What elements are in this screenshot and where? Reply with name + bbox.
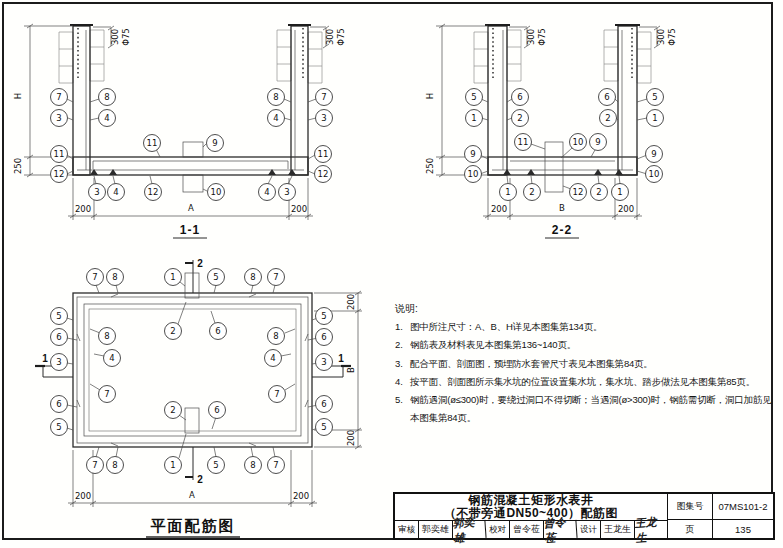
section-1-marker-right: 1 bbox=[338, 353, 344, 364]
sump-cut-bottom bbox=[185, 408, 199, 433]
title-block-left: 钢筋混凝土矩形水表井 （不带旁通DN50~400）配筋图 审核 郭奕雄 郭奕雄 … bbox=[395, 494, 668, 538]
title-block-labels: 图集号 页 bbox=[668, 494, 713, 538]
page-number-value: 135 bbox=[713, 520, 773, 538]
rebar-callout: 1 bbox=[647, 110, 664, 127]
note-number: 2. bbox=[395, 336, 410, 354]
callout-number: 8 bbox=[112, 460, 117, 470]
callout-number: 11 bbox=[54, 149, 65, 159]
rebar-callout: 5 bbox=[647, 89, 664, 106]
checker-signature: 曾令莅 bbox=[543, 520, 577, 540]
callout-number: 5 bbox=[213, 460, 218, 470]
rebar-callout: 11 bbox=[315, 146, 332, 163]
callout-leaders bbox=[67, 282, 318, 458]
callout-number: 2 bbox=[596, 187, 601, 197]
rebar-callout: 8 bbox=[245, 269, 262, 286]
note-number: 4. bbox=[395, 373, 410, 391]
title-block: 钢筋混凝土矩形水表井 （不带旁通DN50~400）配筋图 审核 郭奕雄 郭奕雄 … bbox=[393, 492, 775, 540]
dim-A-bottom: A bbox=[189, 490, 195, 500]
callout-number: 11 bbox=[518, 137, 529, 147]
note-text: 钢筋遇洞(ø≤300)时，要绕过洞口不得切断；当遇洞(ø>300)时，钢筋需切断… bbox=[410, 391, 775, 427]
callout-number: 2 bbox=[170, 326, 175, 336]
callout-number: 1 bbox=[652, 113, 657, 123]
checker-name: 曾令莅 bbox=[510, 521, 544, 539]
dim-200-right-bottom: 200 bbox=[346, 430, 356, 446]
atlas-drawing-page: 300 Φ75 300 Φ75 H 250 200 A 200 7 8 3 4 … bbox=[0, 0, 783, 548]
note-number: 1. bbox=[395, 318, 410, 336]
note-text: 钢筋表及材料表见本图集第136~140页。 bbox=[410, 336, 775, 354]
dim-H: H bbox=[13, 93, 23, 99]
base-slab bbox=[488, 157, 637, 175]
rebar-callout: 9 bbox=[207, 135, 224, 152]
callout-number: 1 bbox=[505, 187, 510, 197]
rebar-callout: 7 bbox=[268, 269, 285, 286]
note-item-1: 1.图中所注尺寸：A、B、H详见本图集第134页。 bbox=[395, 318, 775, 336]
designer-name: 王龙生 bbox=[601, 521, 635, 539]
dim-A: A bbox=[188, 203, 194, 213]
note-item-4: 4.按平面、剖面图所示集水坑的位置设置集水坑，集水坑、踏步做法见本图集第85页。 bbox=[395, 373, 775, 391]
callout-number: 7 bbox=[321, 92, 326, 102]
section-2-2-caption: 2-2 bbox=[552, 223, 572, 237]
callout-number: 1 bbox=[170, 460, 175, 470]
rebar-callout: 7 bbox=[268, 457, 285, 474]
rebar-callout: 3 bbox=[89, 184, 106, 201]
rebar-callout: 10 bbox=[570, 134, 587, 151]
stirrup-dots bbox=[493, 28, 632, 80]
callout-number: 2 bbox=[170, 405, 175, 415]
rebar-callout: 6 bbox=[209, 402, 226, 419]
callout-number: 2 bbox=[529, 187, 534, 197]
sump-rect bbox=[545, 142, 563, 192]
dim-200-bottom-left: 200 bbox=[75, 491, 91, 501]
callout-number: 6 bbox=[214, 405, 219, 415]
rebar-callout: 1 bbox=[500, 184, 517, 201]
reviewer-signature: 郭奕雄 bbox=[452, 520, 486, 540]
callout-number: 5 bbox=[56, 422, 61, 432]
callout-number: 10 bbox=[468, 169, 479, 179]
callout-number: 7 bbox=[92, 460, 97, 470]
ann-300-left: 300 bbox=[526, 29, 536, 45]
dim-250: 250 bbox=[13, 158, 23, 174]
well-rebar-rect1 bbox=[84, 304, 301, 436]
dim-H: H bbox=[425, 93, 435, 99]
callout-number: 2 bbox=[517, 113, 522, 123]
rebar-callout: 6 bbox=[316, 396, 333, 413]
rebar-callout: 12 bbox=[315, 166, 332, 183]
rebar-callout: 4 bbox=[268, 110, 285, 127]
callout-number: 9 bbox=[595, 137, 600, 147]
callout-number: 6 bbox=[215, 326, 220, 336]
ann-d75-left: Φ75 bbox=[121, 28, 131, 46]
callout-number: 4 bbox=[264, 187, 269, 197]
callout-number: 5 bbox=[56, 311, 61, 321]
rebar-callout: 7 bbox=[316, 89, 333, 106]
rebar-callout: 1 bbox=[165, 457, 182, 474]
rebar-callout: 6 bbox=[316, 329, 333, 346]
rebar-callout: 3 bbox=[279, 184, 296, 201]
callout-number: 3 bbox=[56, 113, 61, 123]
rebar-callout: 3 bbox=[51, 354, 68, 371]
drawing-title-line1: 钢筋混凝土矩形水表井 bbox=[469, 494, 594, 507]
rebar-callout: 5 bbox=[316, 308, 333, 325]
masonry-hatch bbox=[474, 30, 651, 83]
dim-200-right: 200 bbox=[618, 204, 634, 214]
masonry-hatch bbox=[59, 30, 322, 83]
callout-number: 8 bbox=[273, 92, 278, 102]
rebar-callout: 10 bbox=[465, 166, 482, 183]
callout-number: 6 bbox=[56, 332, 61, 342]
callout-number: 5 bbox=[652, 92, 657, 102]
rebar-callout: 4 bbox=[259, 184, 276, 201]
callout-number: 9 bbox=[651, 149, 656, 159]
rebar-callout: 4 bbox=[104, 350, 121, 367]
well-wall-line2 bbox=[77, 297, 308, 443]
rebar-callout: 5 bbox=[208, 457, 225, 474]
rebar-callout: 1 bbox=[612, 184, 629, 201]
rebar-callout: 8 bbox=[99, 89, 116, 106]
rebar-callout: 7 bbox=[269, 386, 286, 403]
approval-row: 审核 郭奕雄 郭奕雄 校对 曾令莅 曾令莅 设计 王龙生 王龙生 bbox=[395, 521, 667, 539]
callout-number: 6 bbox=[56, 399, 61, 409]
rebar-callout: 8 bbox=[99, 328, 116, 345]
callout-number: 12 bbox=[573, 187, 584, 197]
rebar-callout: 7 bbox=[51, 89, 68, 106]
rebar-callout: 10 bbox=[208, 184, 225, 201]
callout-number: 1 bbox=[471, 113, 476, 123]
reviewer-name: 郭奕雄 bbox=[419, 521, 453, 539]
section-2-marker-top: 2 bbox=[197, 258, 203, 269]
rebar-callout: 3 bbox=[316, 354, 333, 371]
rebar-callout: 2 bbox=[524, 184, 541, 201]
callout-number: 1 bbox=[617, 187, 622, 197]
rebar-callout: 1 bbox=[165, 269, 182, 286]
section-2-cut-bars bbox=[185, 263, 193, 477]
drawing-title: 钢筋混凝土矩形水表井 （不带旁通DN50~400）配筋图 bbox=[395, 494, 667, 521]
notes-panel: 说明: 1.图中所注尺寸：A、B、H详见本图集第134页。 2.钢筋表及材料表见… bbox=[395, 299, 775, 428]
callout-number: 5 bbox=[213, 272, 218, 282]
rebar-callout: 8 bbox=[107, 457, 124, 474]
ann-300-left: 300 bbox=[110, 29, 120, 45]
rebar-callout: 11 bbox=[51, 146, 68, 163]
callout-number: 7 bbox=[92, 272, 97, 282]
sump-cut-top bbox=[185, 273, 199, 298]
callout-number: 5 bbox=[321, 422, 326, 432]
rebar-callout: 4 bbox=[265, 350, 282, 367]
callout-number: 9 bbox=[212, 138, 217, 148]
section-1-marker-left: 1 bbox=[42, 353, 48, 364]
callout-number: 10 bbox=[649, 169, 660, 179]
callout-number: 3 bbox=[321, 357, 326, 367]
well-rebar-rect2 bbox=[89, 309, 296, 431]
wall-left bbox=[73, 26, 90, 175]
atlas-number-label: 图集号 bbox=[668, 494, 712, 520]
rebar-callout: 2 bbox=[591, 184, 608, 201]
rebar-callout: 12 bbox=[570, 184, 587, 201]
callout-number: 6 bbox=[517, 92, 522, 102]
callout-number: 5 bbox=[321, 311, 326, 321]
callout-number: 12 bbox=[148, 187, 159, 197]
rebar-callout: 5 bbox=[208, 269, 225, 286]
notes-heading: 说明: bbox=[395, 299, 775, 318]
rebar-hook-marks bbox=[77, 294, 308, 446]
note-item-2: 2.钢筋表及材料表见本图集第136~140页。 bbox=[395, 336, 775, 354]
callout-number: 8 bbox=[104, 331, 109, 341]
rebar-callout: 7 bbox=[87, 457, 104, 474]
callout-number: 2 bbox=[605, 113, 610, 123]
callout-number: 8 bbox=[250, 272, 255, 282]
reviewer-label: 审核 bbox=[395, 521, 419, 539]
rebar-callout: 2 bbox=[165, 323, 182, 340]
atlas-number-value: 07MS101-2 bbox=[713, 494, 773, 520]
ann-d75-right: Φ75 bbox=[336, 28, 346, 46]
callout-number: 10 bbox=[211, 187, 222, 197]
callout-number: 7 bbox=[273, 272, 278, 282]
rebar-callout: 2 bbox=[165, 402, 182, 419]
callout-number: 6 bbox=[321, 399, 326, 409]
plan-view-diagram: 2 2 1 1 200 B 200 200 A 200 7 8 1 5 8 7 … bbox=[10, 250, 400, 548]
rebar-callout: 8 bbox=[107, 269, 124, 286]
rebar-callout: 6 bbox=[512, 89, 529, 106]
callout-number: 8 bbox=[273, 331, 278, 341]
callout-number: 4 bbox=[273, 113, 278, 123]
title-block-values: 07MS101-2 135 bbox=[713, 494, 773, 538]
callout-number: 7 bbox=[104, 389, 109, 399]
dim-B-right: B bbox=[346, 367, 356, 373]
rebar-callout: 11 bbox=[515, 134, 532, 151]
rebar-callout: 9 bbox=[590, 134, 607, 151]
rebar-callout: 2 bbox=[512, 110, 529, 127]
callout-number: 8 bbox=[112, 272, 117, 282]
checker-label: 校对 bbox=[486, 521, 510, 539]
rebar-callout: 5 bbox=[51, 308, 68, 325]
callout-number: 12 bbox=[54, 169, 65, 179]
callout-number: 8 bbox=[250, 460, 255, 470]
rebar-callout: 6 bbox=[51, 396, 68, 413]
page-label: 页 bbox=[668, 520, 712, 538]
rebar-callout: 10 bbox=[646, 166, 663, 183]
rebar-callout: 8 bbox=[268, 89, 285, 106]
callout-number: 4 bbox=[104, 113, 109, 123]
rebar-callout: 4 bbox=[108, 184, 125, 201]
rebar-callout: 6 bbox=[210, 323, 227, 340]
rebar-callout: 7 bbox=[87, 269, 104, 286]
callout-number: 8 bbox=[104, 92, 109, 102]
section-1-1-diagram: 300 Φ75 300 Φ75 H 250 200 A 200 7 8 3 4 … bbox=[10, 8, 390, 246]
rebar-callout: 12 bbox=[145, 184, 162, 201]
callout-number: 4 bbox=[109, 353, 114, 363]
callout-number: 7 bbox=[56, 92, 61, 102]
dim-250: 250 bbox=[425, 158, 435, 174]
note-text: 配合平面、剖面图，预埋防水套管尺寸表见本图集第84页。 bbox=[410, 355, 775, 373]
wall-right bbox=[291, 26, 308, 175]
callout-number: 1 bbox=[170, 272, 175, 282]
sump-rect-top bbox=[183, 142, 203, 157]
rebar-callout: 1 bbox=[466, 110, 483, 127]
section-2-2-diagram: 300 Φ75 300 Φ75 H 250 200 B 200 5 6 1 2 … bbox=[405, 8, 775, 246]
dim-200-left: 200 bbox=[75, 204, 91, 214]
callout-number: 6 bbox=[321, 332, 326, 342]
dim-200-left: 200 bbox=[491, 204, 507, 214]
rebar-callout: 9 bbox=[465, 146, 482, 163]
sump-rect-bottom bbox=[183, 175, 203, 192]
rebar-callout: 5 bbox=[316, 419, 333, 436]
callout-number: 11 bbox=[147, 138, 158, 148]
rebar-callout: 6 bbox=[599, 89, 616, 106]
rebar-callout: 6 bbox=[51, 329, 68, 346]
dim-200-right: 200 bbox=[291, 204, 307, 214]
rebar-callout: 4 bbox=[99, 110, 116, 127]
rebar-callout: 7 bbox=[99, 386, 116, 403]
note-item-5: 5.钢筋遇洞(ø≤300)时，要绕过洞口不得切断；当遇洞(ø>300)时，钢筋需… bbox=[395, 391, 775, 427]
rebar-callout: 11 bbox=[144, 135, 161, 152]
callout-number: 3 bbox=[94, 187, 99, 197]
callout-number: 12 bbox=[318, 169, 329, 179]
callout-number: 7 bbox=[273, 460, 278, 470]
callout-number: 3 bbox=[56, 357, 61, 367]
rebar-callout: 5 bbox=[51, 419, 68, 436]
rebar-callout: 3 bbox=[316, 110, 333, 127]
dim-B: B bbox=[559, 203, 565, 213]
callout-number: 4 bbox=[270, 353, 275, 363]
callout-number: 5 bbox=[471, 92, 476, 102]
note-number: 3. bbox=[395, 355, 410, 373]
rebar-callout: 8 bbox=[245, 457, 262, 474]
note-number: 5. bbox=[395, 391, 410, 427]
rebar-callout: 12 bbox=[51, 166, 68, 183]
rebar-callout: 9 bbox=[646, 146, 663, 163]
bottom-dimension-line bbox=[68, 178, 313, 220]
designer-label: 设计 bbox=[577, 521, 601, 539]
wall-left bbox=[488, 26, 507, 175]
well-outer-wall bbox=[73, 293, 312, 447]
ann-d75-left: Φ75 bbox=[537, 28, 547, 46]
dim-200-bottom-right: 200 bbox=[293, 491, 309, 501]
ann-300-right: 300 bbox=[656, 29, 666, 45]
note-item-3: 3.配合平面、剖面图，预埋防水套管尺寸表见本图集第84页。 bbox=[395, 355, 775, 373]
rebar-callout: 8 bbox=[268, 328, 285, 345]
ann-d75-right: Φ75 bbox=[667, 28, 677, 46]
note-text: 按平面、剖面图所示集水坑的位置设置集水坑，集水坑、踏步做法见本图集第85页。 bbox=[410, 373, 775, 391]
ann-300-right: 300 bbox=[325, 29, 335, 45]
callout-number: 11 bbox=[318, 149, 329, 159]
rebar-callout: 2 bbox=[600, 110, 617, 127]
rebar-callout: 3 bbox=[51, 110, 68, 127]
designer-signature: 王龙生 bbox=[634, 520, 667, 540]
dim-200-right-top: 200 bbox=[346, 294, 356, 310]
callout-number: 3 bbox=[284, 187, 289, 197]
note-text: 图中所注尺寸：A、B、H详见本图集第134页。 bbox=[410, 318, 775, 336]
callout-number: 9 bbox=[470, 149, 475, 159]
callout-number: 6 bbox=[604, 92, 609, 102]
callout-number: 7 bbox=[274, 389, 279, 399]
plan-caption: 平面配筋图 bbox=[151, 517, 236, 534]
rebar-callout: 5 bbox=[466, 89, 483, 106]
section-1-1-caption: 1-1 bbox=[180, 223, 200, 237]
callout-number: 10 bbox=[573, 137, 584, 147]
wall-right bbox=[618, 26, 637, 175]
section-2-marker-bottom: 2 bbox=[197, 474, 203, 485]
callout-number: 4 bbox=[113, 187, 118, 197]
callout-number: 3 bbox=[321, 113, 326, 123]
